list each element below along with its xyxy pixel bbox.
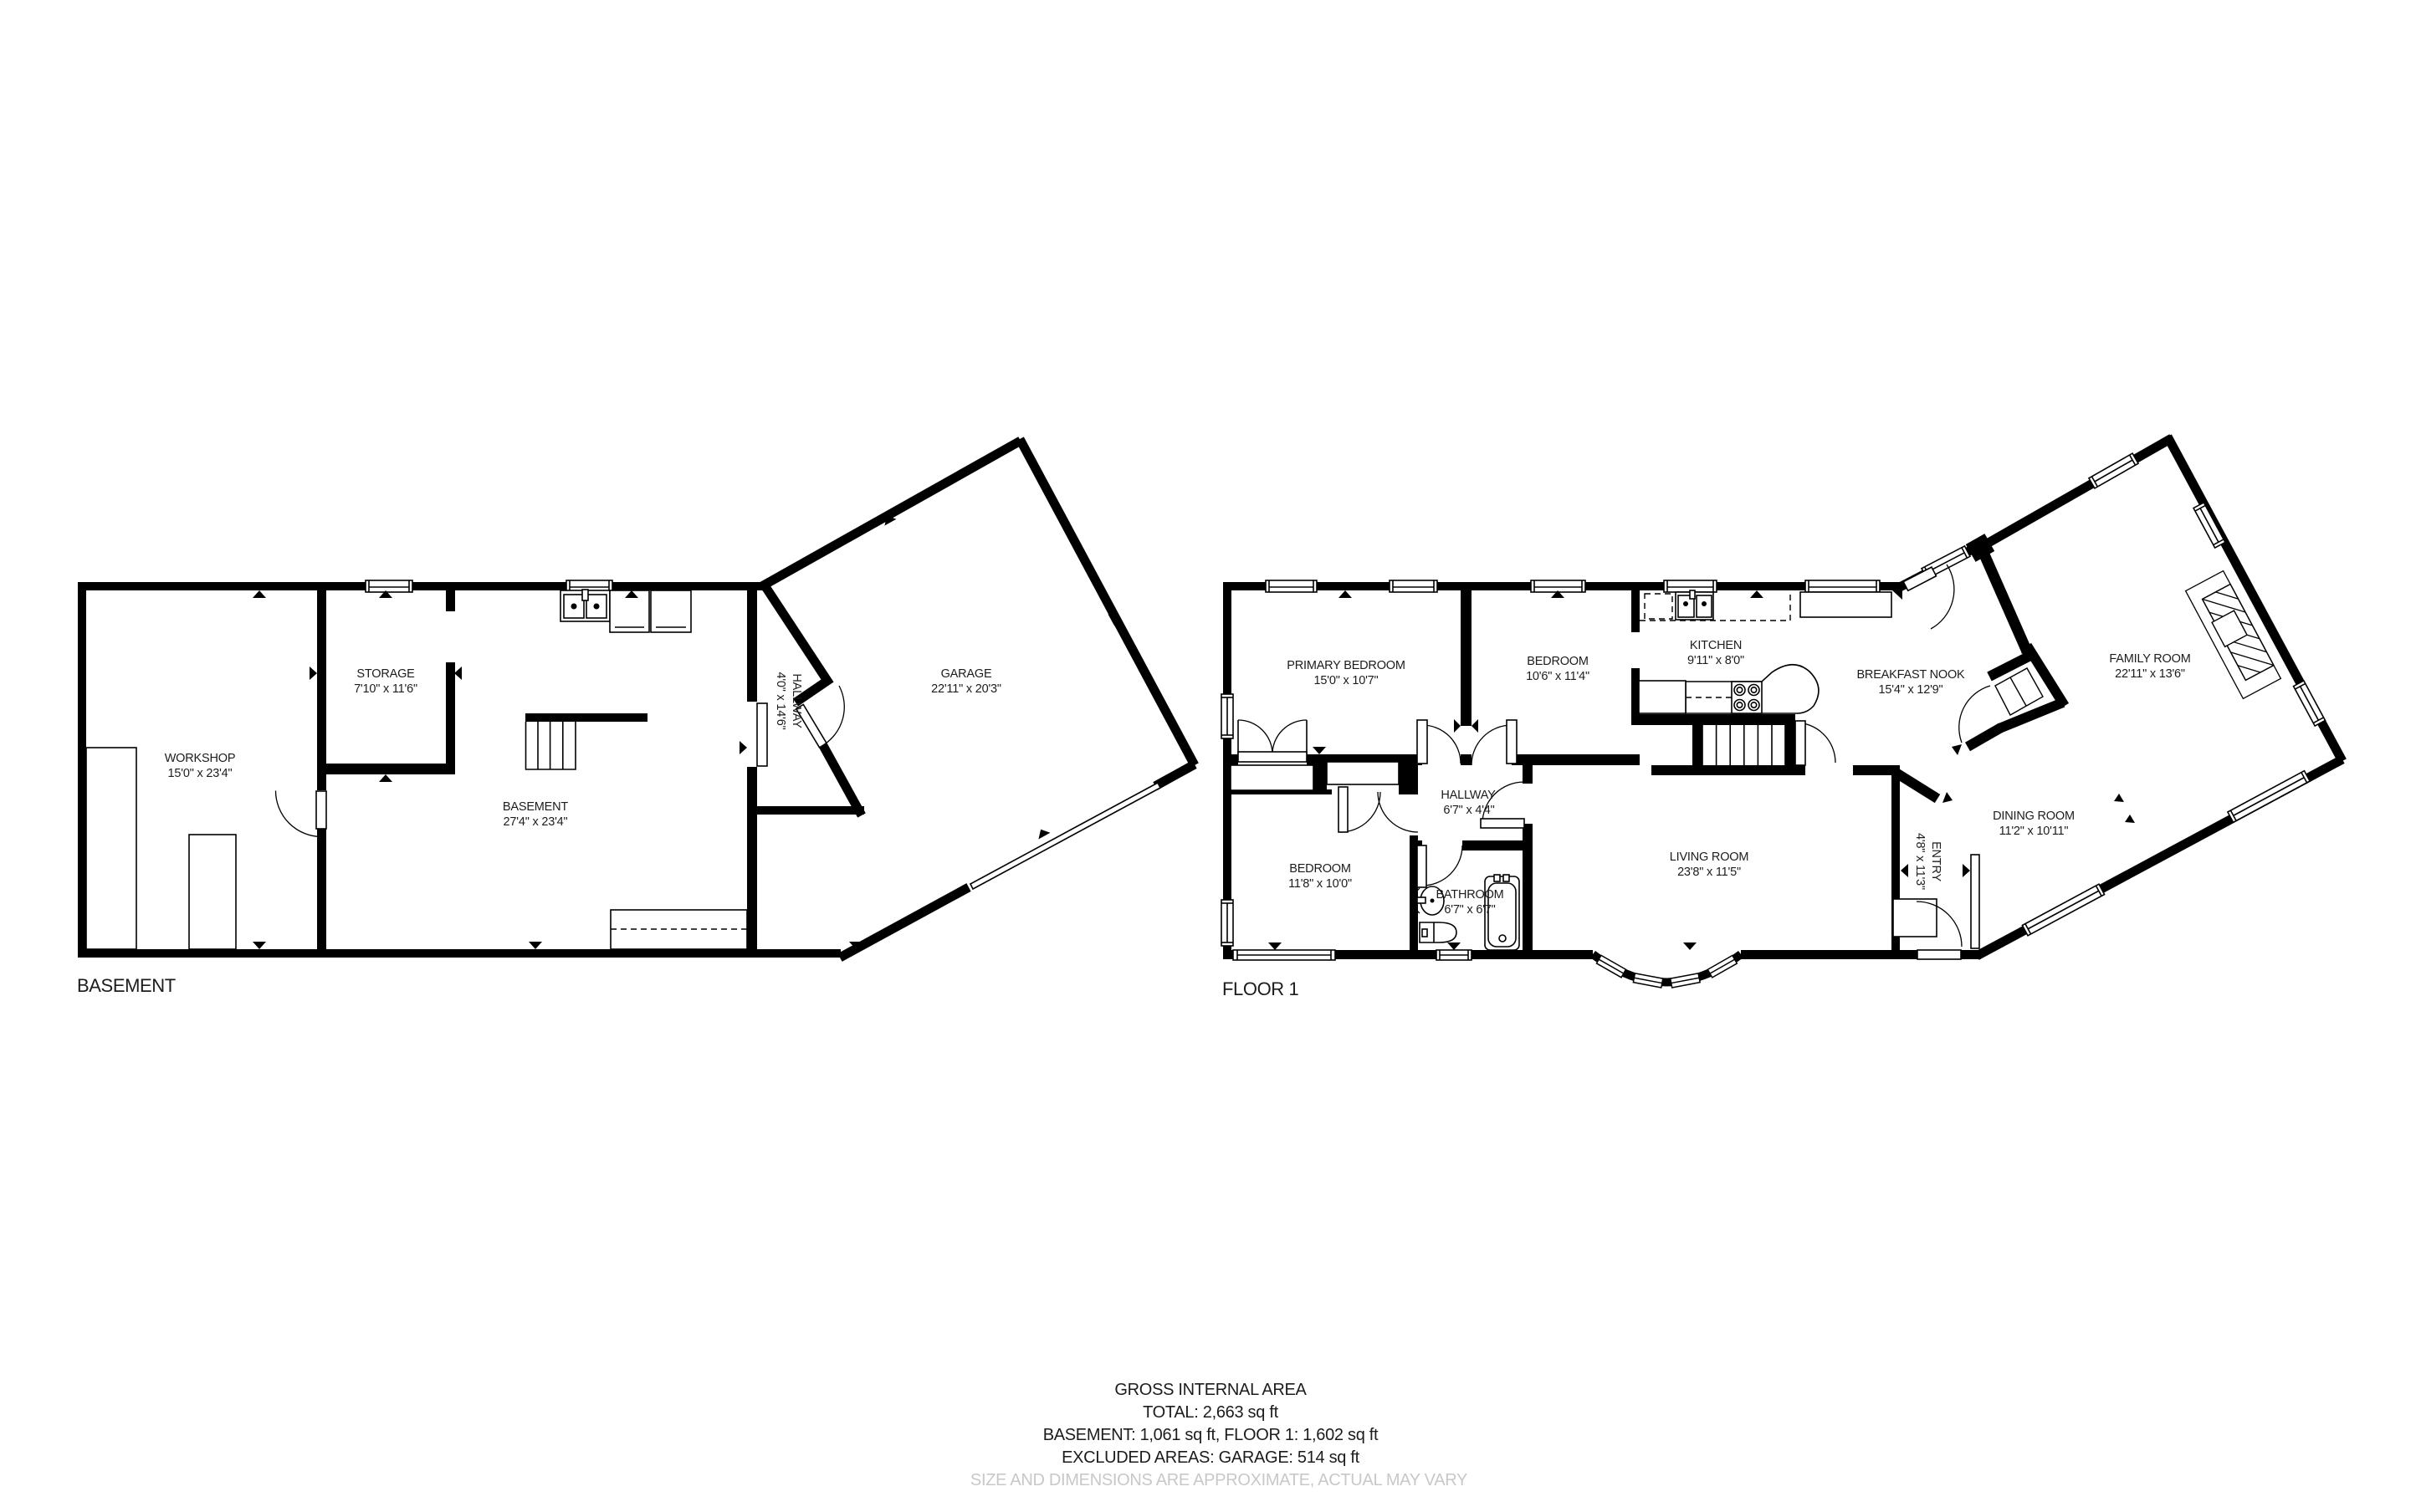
svg-text:15'4" x 12'9": 15'4" x 12'9" (1879, 683, 1943, 697)
svg-text:15'0" x 10'7": 15'0" x 10'7" (1314, 674, 1379, 687)
svg-text:BREAKFAST NOOK: BREAKFAST NOOK (1856, 668, 1965, 682)
svg-text:27'4" x 23'4": 27'4" x 23'4" (504, 815, 568, 829)
svg-text:7'10" x 11'6": 7'10" x 11'6" (354, 682, 417, 696)
svg-text:4'8" x 11'3": 4'8" x 11'3" (1913, 833, 1927, 890)
svg-text:4'0" x 14'6": 4'0" x 14'6" (774, 672, 787, 729)
svg-text:LIVING ROOM: LIVING ROOM (1670, 850, 1748, 864)
svg-text:FLOOR 1: FLOOR 1 (1222, 978, 1298, 999)
svg-text:ENTRY: ENTRY (1929, 841, 1942, 881)
svg-text:10'6" x 11'4": 10'6" x 11'4" (1526, 670, 1589, 683)
svg-text:6'7" x 6'7": 6'7" x 6'7" (1444, 903, 1495, 917)
svg-text:GROSS INTERNAL AREA: GROSS INTERNAL AREA (1114, 1381, 1307, 1399)
svg-text:DINING ROOM: DINING ROOM (1993, 810, 2075, 823)
svg-text:FAMILY ROOM: FAMILY ROOM (2109, 652, 2190, 666)
svg-text:23'8" x 11'5": 23'8" x 11'5" (1677, 866, 1741, 879)
svg-text:15'0" x 23'4": 15'0" x 23'4" (168, 767, 233, 780)
svg-text:22'11" x 20'3": 22'11" x 20'3" (931, 682, 1001, 696)
svg-text:STORAGE: STORAGE (356, 667, 415, 681)
svg-text:11'2" x 10'11": 11'2" x 10'11" (1999, 825, 2069, 838)
svg-text:EXCLUDED AREAS: GARAGE: 514 sq: EXCLUDED AREAS: GARAGE: 514 sq ft (1062, 1448, 1360, 1467)
svg-text:KITCHEN: KITCHEN (1690, 639, 1742, 652)
svg-text:11'8" x 10'0": 11'8" x 10'0" (1288, 877, 1352, 891)
svg-text:6'7" x 4'4": 6'7" x 4'4" (1443, 804, 1494, 817)
svg-text:PRIMARY BEDROOM: PRIMARY BEDROOM (1287, 659, 1405, 672)
svg-text:BASEMENT: BASEMENT (503, 800, 569, 814)
svg-text:WORKSHOP: WORKSHOP (165, 752, 236, 765)
svg-text:TOTAL: 2,663 sq ft: TOTAL: 2,663 sq ft (1143, 1403, 1278, 1422)
svg-text:BASEMENT: 1,061 sq ft, FLOOR 1: BASEMENT: 1,061 sq ft, FLOOR 1: 1,602 sq… (1043, 1426, 1379, 1444)
svg-text:22'11" x 13'6": 22'11" x 13'6" (2115, 667, 2185, 681)
svg-text:9'11" x 8'0": 9'11" x 8'0" (1687, 654, 1744, 667)
svg-text:BATHROOM: BATHROOM (1436, 888, 1503, 902)
svg-text:BEDROOM: BEDROOM (1289, 862, 1351, 876)
svg-text:BEDROOM: BEDROOM (1527, 655, 1589, 668)
svg-text:BASEMENT: BASEMENT (77, 975, 176, 996)
svg-text:SIZE AND DIMENSIONS ARE APPROX: SIZE AND DIMENSIONS ARE APPROXIMATE, ACT… (970, 1471, 1467, 1489)
svg-text:GARAGE: GARAGE (941, 667, 992, 681)
svg-text:HALLWAY: HALLWAY (1441, 789, 1496, 802)
svg-text:HALLWAY: HALLWAY (790, 673, 803, 728)
